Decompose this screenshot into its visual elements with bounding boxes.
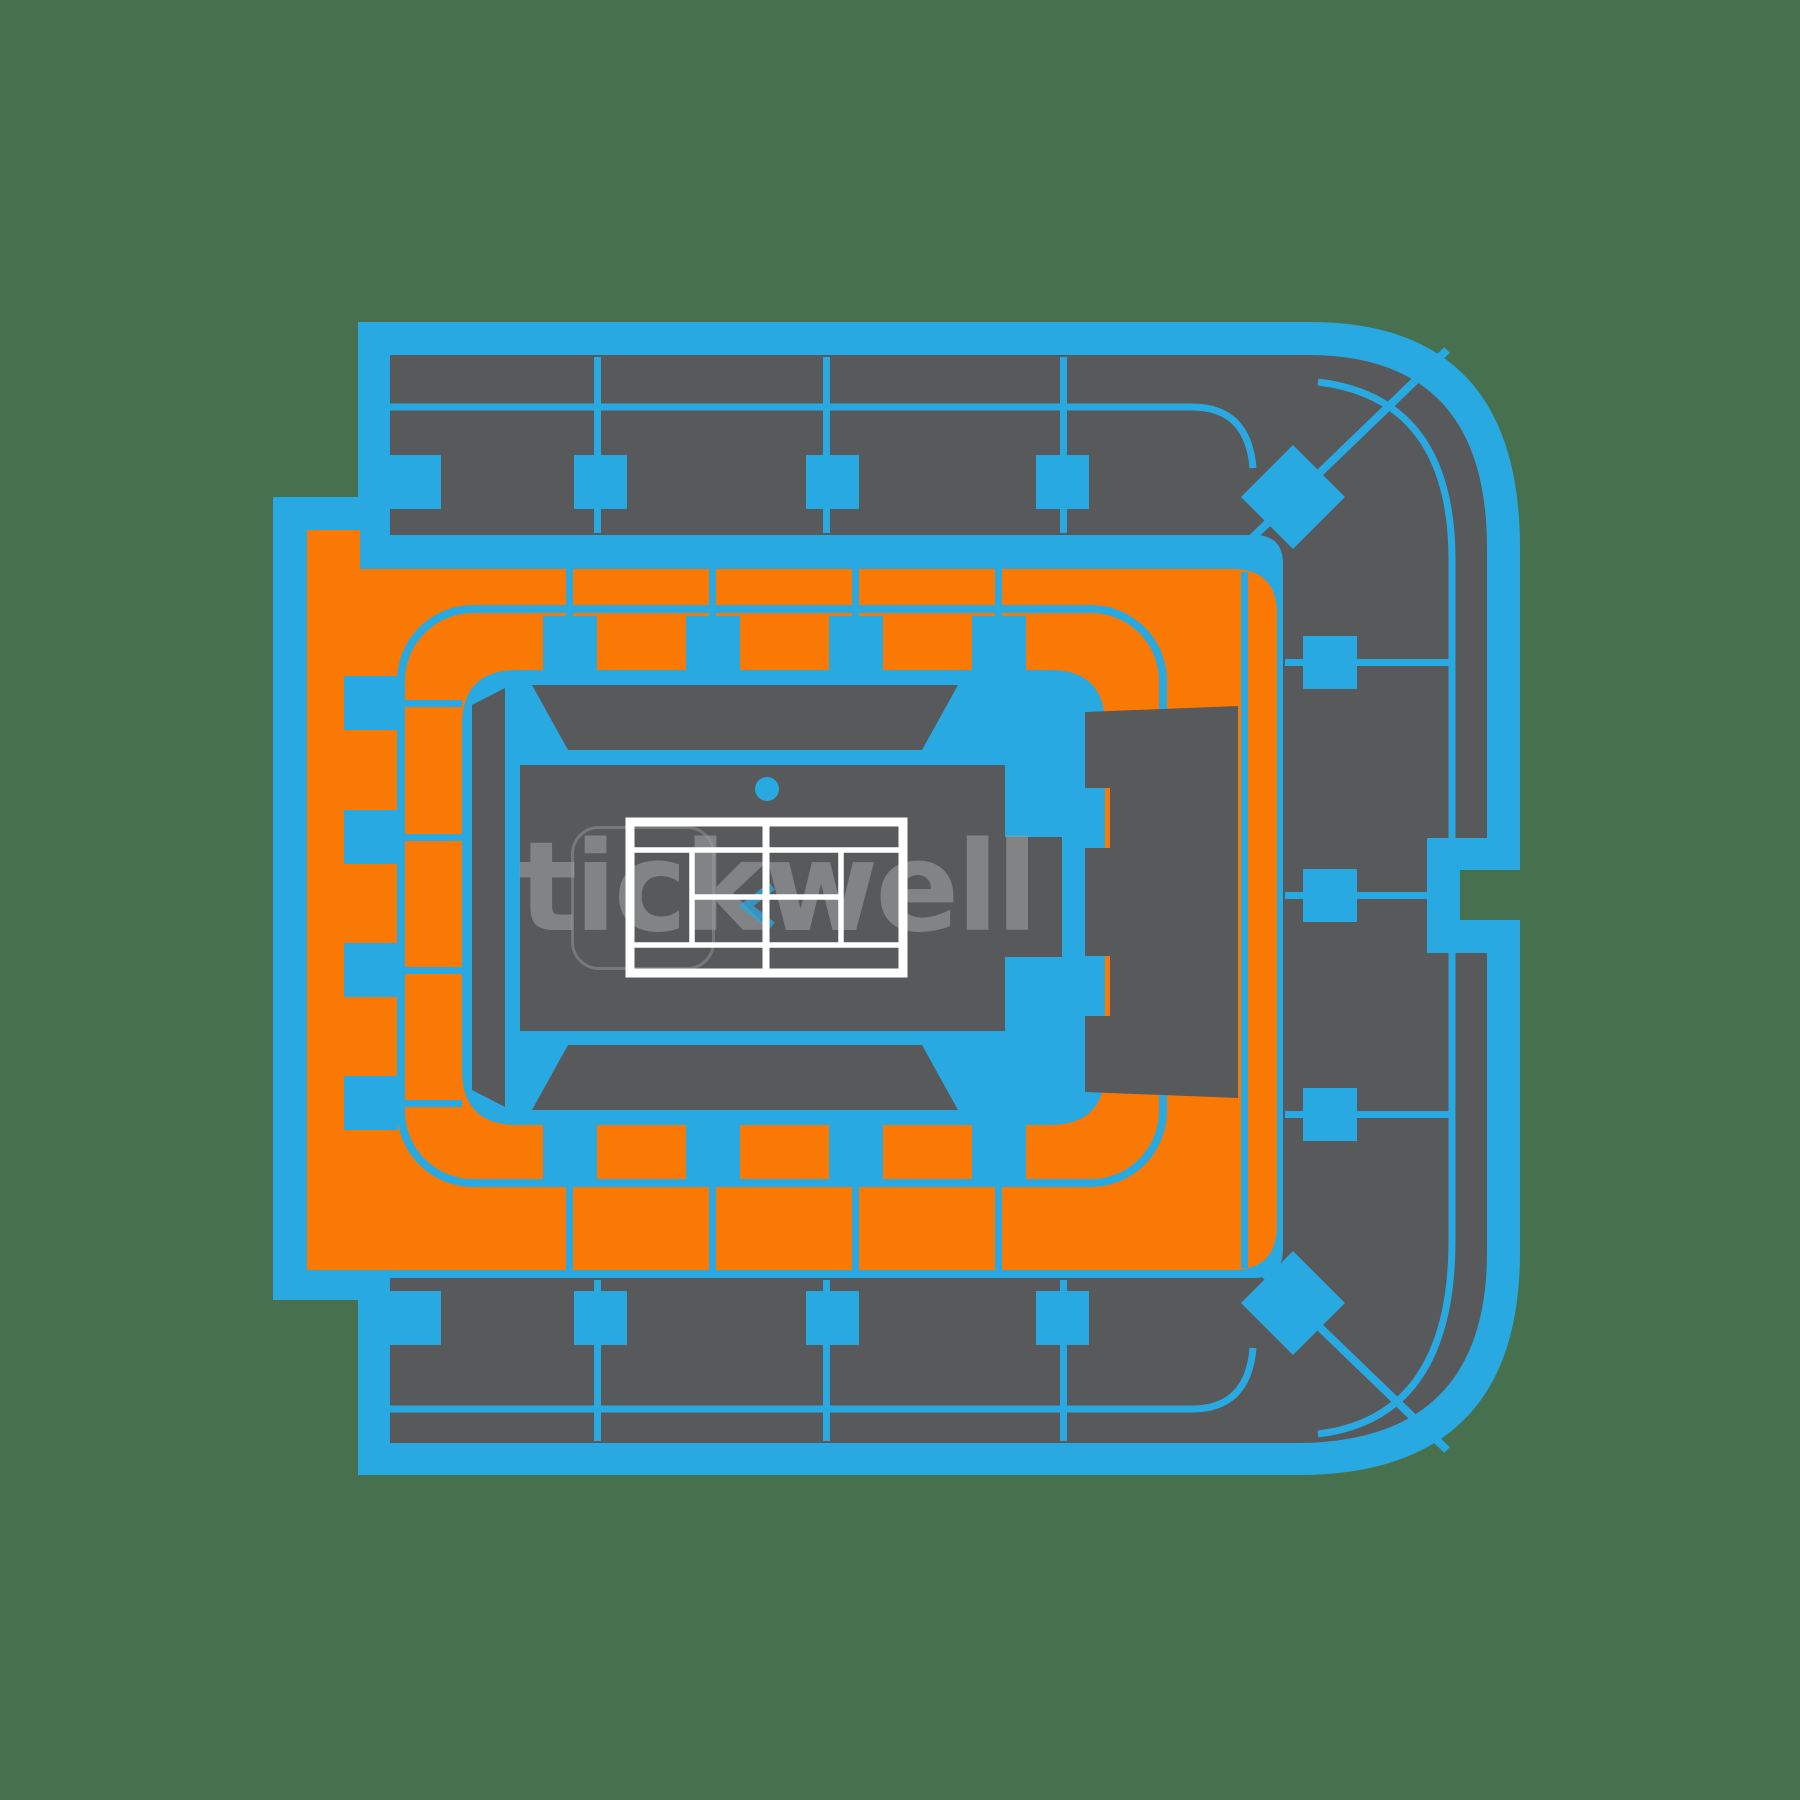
watermark-text: tickwell [518, 838, 1158, 978]
courtside-west-stand[interactable] [472, 688, 505, 1107]
courtside-north-stand[interactable] [532, 685, 958, 750]
courtside-south-stand[interactable] [532, 1045, 958, 1110]
stadium-map: tickwell [0, 0, 1800, 1800]
